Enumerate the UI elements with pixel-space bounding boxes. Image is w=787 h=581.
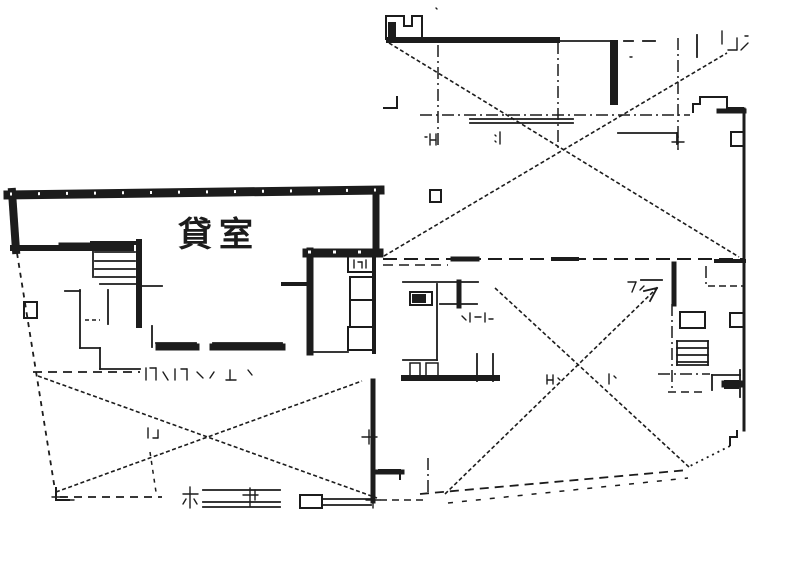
scan-noise (632, 282, 636, 292)
scan-noise (163, 372, 168, 380)
scan-noise (558, 378, 560, 380)
scan-noise (495, 135, 496, 136)
scan-noise (436, 8, 437, 9)
scan-noise (194, 499, 197, 504)
scan-noise (614, 376, 616, 378)
room-rect (430, 190, 441, 202)
cross-diagonal (384, 53, 727, 256)
room-rect (680, 312, 705, 328)
room-rect (300, 495, 322, 508)
scan-noise (462, 316, 466, 320)
room-rect (410, 363, 420, 377)
cross-diagonal (495, 288, 689, 467)
wall-polyline (731, 132, 744, 146)
wall-fill (724, 380, 739, 389)
room-rect (350, 300, 374, 327)
scan-page: 貸室 (0, 0, 787, 581)
scan-noise (495, 141, 496, 142)
scan-noise (197, 372, 203, 378)
wall-thick (8, 190, 380, 195)
room-rect (730, 313, 744, 327)
boundary-dashed (448, 478, 688, 503)
wall-fill (388, 22, 396, 40)
scan-noise (640, 286, 644, 290)
wall-polyline (383, 96, 397, 108)
scan-noise (183, 499, 186, 504)
room-rect (348, 327, 374, 350)
wall-thick (12, 192, 16, 250)
room-rect (350, 277, 374, 300)
cross-diagonal (445, 289, 656, 494)
floor-plan: 貸室 (0, 0, 787, 581)
scan-noise (741, 43, 748, 50)
room-label: 貸室 (178, 215, 260, 255)
wall-fill (412, 294, 426, 303)
room-rect (348, 256, 374, 272)
cross-marks-layer (38, 43, 739, 498)
partitions-layer (24, 16, 744, 508)
boundary-dashed (690, 446, 730, 466)
scan-noise (248, 370, 252, 375)
scan-noise (210, 372, 214, 378)
room-rect (426, 363, 438, 377)
wall-polyline (730, 430, 737, 446)
centerlines-layer (420, 38, 710, 492)
